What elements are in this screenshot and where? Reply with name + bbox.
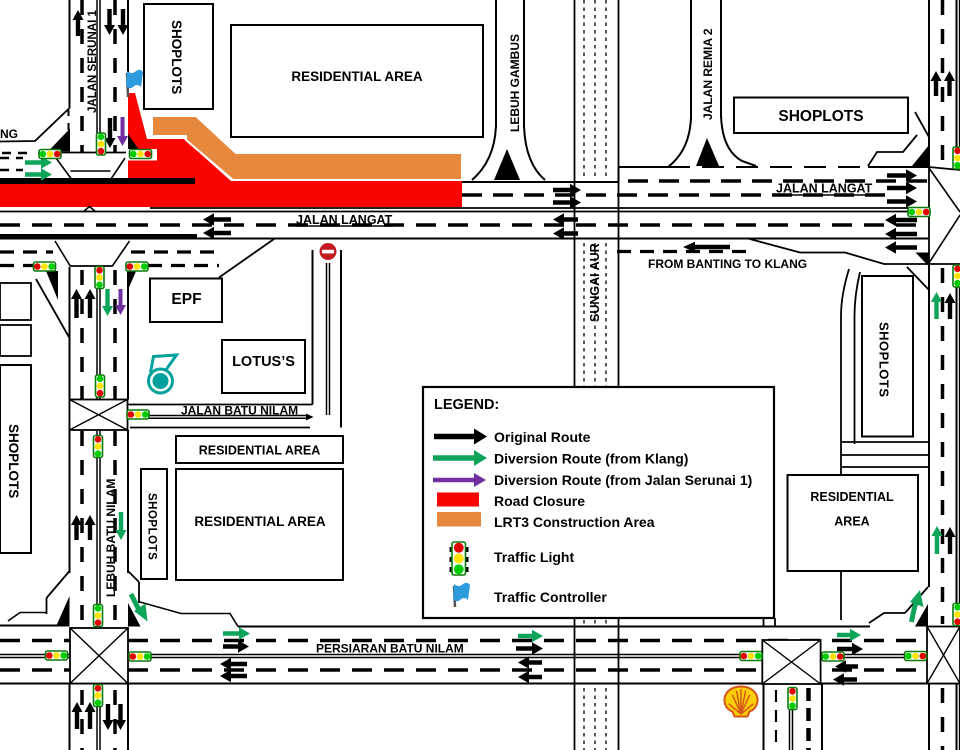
- svg-text:EPF: EPF: [171, 291, 201, 308]
- svg-text:JALAN LANGAT: JALAN LANGAT: [296, 213, 393, 227]
- svg-text:SHOPLOTS: SHOPLOTS: [877, 322, 892, 398]
- svg-text:FROM BANTING TO KLANG: FROM BANTING TO KLANG: [648, 257, 807, 271]
- svg-text:JALAN LANGAT: JALAN LANGAT: [776, 182, 873, 196]
- svg-text:SHOPLOTS: SHOPLOTS: [778, 108, 863, 125]
- svg-text:PERSIARAN BATU NILAM: PERSIARAN BATU NILAM: [316, 642, 464, 656]
- svg-text:RESIDENTIAL AREA: RESIDENTIAL AREA: [291, 69, 423, 84]
- svg-text:Diversion Route (from Klang): Diversion Route (from Klang): [494, 451, 688, 467]
- svg-text:LRT3 Construction Area: LRT3 Construction Area: [494, 514, 655, 530]
- svg-text:Diversion Route (from Jalan Se: Diversion Route (from Jalan Serunai 1): [494, 472, 752, 488]
- svg-text:SUNGAI AUR: SUNGAI AUR: [588, 243, 602, 322]
- svg-text:SHOPLOTS: SHOPLOTS: [169, 20, 184, 94]
- svg-text:JALAN REMIA 2: JALAN REMIA 2: [701, 28, 715, 120]
- svg-text:RESIDENTIAL: RESIDENTIAL: [810, 490, 894, 504]
- svg-text:JALAN SERUNAI 1: JALAN SERUNAI 1: [87, 10, 99, 113]
- svg-text:SHOPLOTS: SHOPLOTS: [146, 493, 158, 560]
- svg-text:SHOPLOTS: SHOPLOTS: [6, 424, 21, 498]
- svg-text:Original Route: Original Route: [494, 429, 591, 445]
- svg-text:LEBUH BATU NILAM: LEBUH BATU NILAM: [104, 479, 118, 597]
- svg-text:LEBUH GAMBUS: LEBUH GAMBUS: [508, 34, 522, 132]
- svg-text:LEGEND:: LEGEND:: [434, 397, 499, 413]
- svg-text:JALAN BATU NILAM: JALAN BATU NILAM: [181, 404, 298, 418]
- svg-text:Traffic Controller: Traffic Controller: [494, 589, 607, 605]
- svg-text:RESIDENTIAL AREA: RESIDENTIAL AREA: [194, 514, 326, 529]
- svg-text:RESIDENTIAL AREA: RESIDENTIAL AREA: [199, 444, 321, 458]
- svg-text:Traffic Light: Traffic Light: [494, 549, 574, 565]
- svg-text:Road Closure: Road Closure: [494, 493, 585, 509]
- svg-text:LOTUS’S: LOTUS’S: [232, 354, 295, 370]
- svg-text:AREA: AREA: [834, 515, 869, 529]
- svg-text:NG: NG: [0, 127, 18, 141]
